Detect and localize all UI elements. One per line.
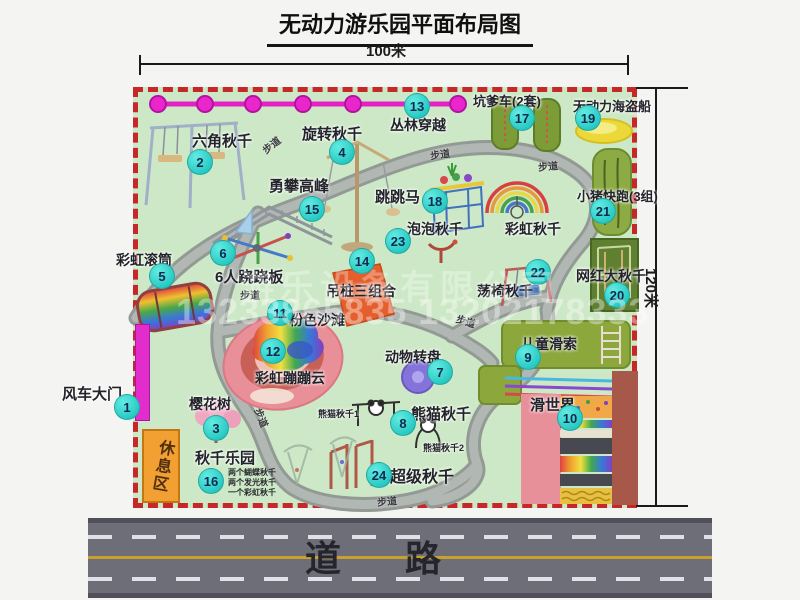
badge-windmill-gate: 1 — [114, 394, 140, 420]
badge-glider-swing: 22 — [525, 259, 551, 285]
label-jumping-horse: 跳跳马 — [375, 186, 420, 207]
bubble-swing-structure — [429, 240, 458, 264]
slide-world-area — [521, 371, 638, 505]
dimension-width-label: 100米 — [366, 40, 406, 61]
rest-area-label: 休息区 — [144, 437, 177, 494]
label-rainbow-swing: 彩虹秋千 — [505, 219, 561, 239]
label-glider-swing: 荡椅秋千 — [477, 281, 533, 301]
badge-rotating-swing: 4 — [329, 139, 355, 165]
walkway-label-2: 步道 — [429, 145, 451, 163]
badge-animal-carousel: 7 — [427, 359, 453, 385]
label-swing-park: 秋千乐园 — [195, 447, 255, 468]
badge-pink-beach: 11 — [267, 300, 293, 326]
label-piggy-run: 小猪快跑(3组) — [577, 186, 658, 205]
walkway-label-7: 步道 — [376, 492, 397, 509]
rest-area-box: 休息区 — [142, 429, 180, 503]
badge-slide-world: 10 — [557, 405, 583, 431]
label-hexagon-swing: 六角秋千 — [192, 130, 252, 151]
swing-park-note-3: 一个彩虹秋千 — [228, 487, 276, 498]
badge-bubble-swing: 23 — [385, 228, 411, 254]
label-panda-swing-2: 熊猫秋千2 — [423, 441, 464, 454]
badge-rainbow-roller: 5 — [149, 263, 175, 289]
badge-panda-swing: 8 — [390, 410, 416, 436]
label-panda-swing: 熊猫秋千 — [411, 403, 471, 424]
label-pink-beach: 粉色沙滩 — [289, 310, 345, 330]
layout-map-canvas: 无动力游乐园平面布局图 — [0, 0, 800, 600]
badge-pit-cart: 17 — [509, 105, 535, 131]
map-drawing-layer — [0, 0, 800, 600]
badge-jumping-horse: 18 — [422, 188, 448, 214]
label-panda-swing-1: 熊猫秋千1 — [318, 407, 359, 420]
label-pit-cart: 坑爹车(2套) — [473, 91, 541, 110]
badge-hanging-post-combo: 14 — [349, 248, 375, 274]
badge-kids-zipline: 9 — [515, 344, 541, 370]
label-rainbow-bounce-cloud: 彩虹蹦蹦云 — [255, 368, 325, 388]
badge-piggy-run: 21 — [590, 198, 616, 224]
super-swing-structure — [331, 440, 372, 489]
badge-jungle-crossing: 13 — [404, 93, 430, 119]
badge-super-swing: 24 — [366, 462, 392, 488]
badge-six-person-seesaw: 6 — [210, 240, 236, 266]
badge-swing-park: 16 — [198, 468, 224, 494]
walkway-label-4: 步道 — [240, 287, 260, 302]
label-hanging-post-combo: 吊桩三组合 — [326, 281, 396, 301]
walkway-label-3: 步道 — [537, 157, 558, 174]
badge-peak-climbing: 15 — [299, 196, 325, 222]
road: 道 路 — [88, 518, 712, 598]
label-rotating-swing: 旋转秋千 — [302, 123, 362, 144]
road-label: 道 路 — [88, 530, 672, 582]
badge-hexagon-swing: 2 — [187, 149, 213, 175]
swing-park-structures — [284, 437, 356, 484]
badge-pirate-ship: 19 — [575, 105, 601, 131]
badge-cherry-tree: 3 — [203, 415, 229, 441]
badge-big-swing: 20 — [604, 282, 630, 308]
label-six-person-seesaw: 6人跷跷板 — [215, 266, 283, 287]
label-cherry-tree: 樱花树 — [189, 394, 231, 414]
label-windmill-gate: 风车大门 — [62, 383, 122, 404]
label-peak-climbing: 勇攀高峰 — [269, 175, 329, 196]
rainbow-swing-structure — [487, 183, 547, 218]
label-super-swing: 超级秋千 — [390, 463, 454, 487]
label-bubble-swing: 泡泡秋千 — [407, 219, 463, 239]
badge-rainbow-bounce-cloud: 12 — [260, 338, 286, 364]
dimension-height-label: 120米 — [641, 268, 662, 308]
